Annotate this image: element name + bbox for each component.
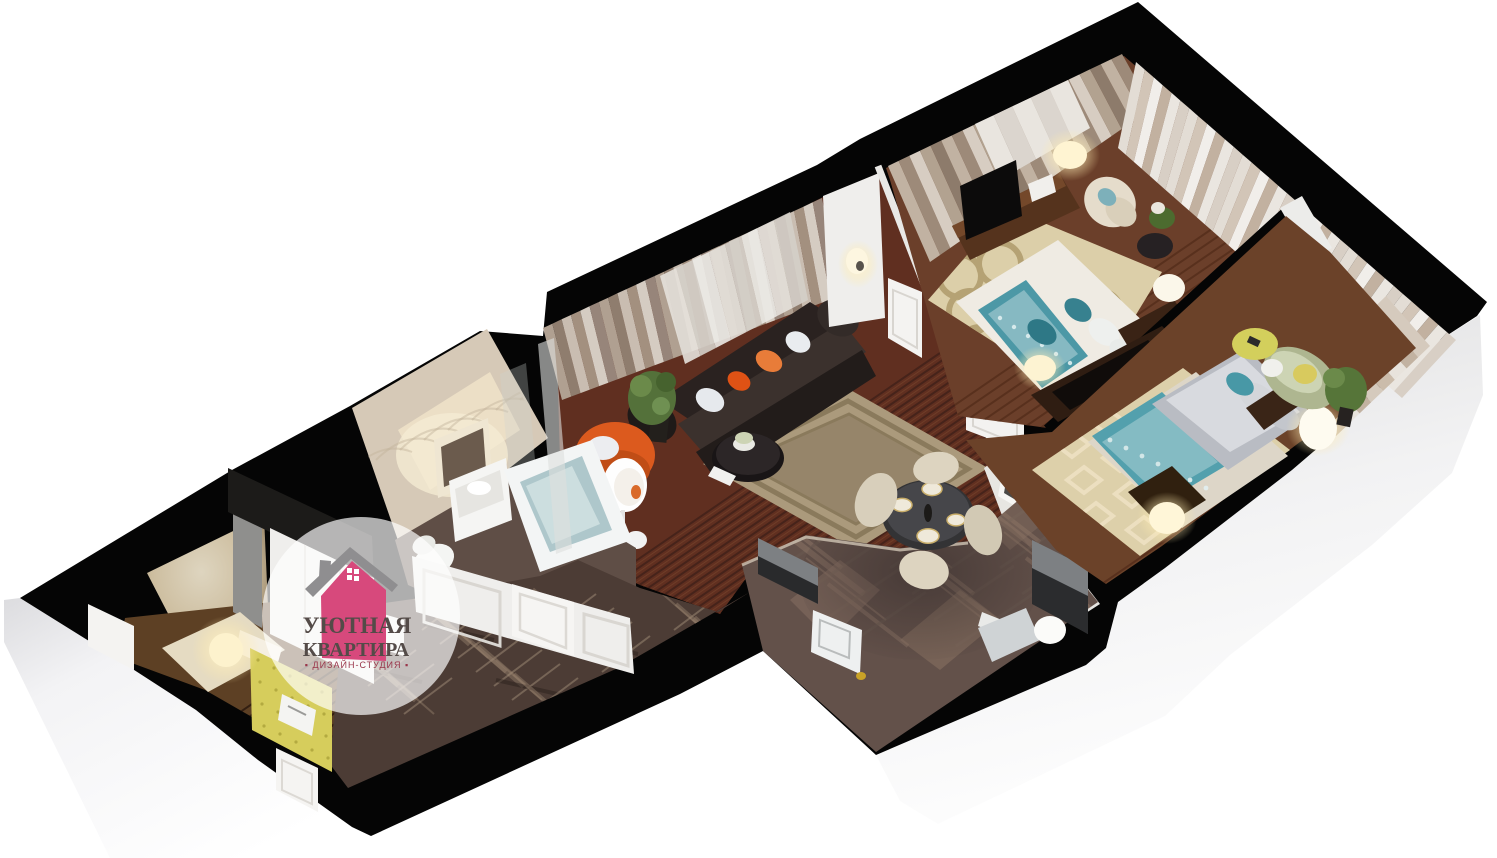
svg-text:КВАРТИРА: КВАРТИРА bbox=[303, 639, 410, 661]
svg-text:УЮТНАЯ: УЮТНАЯ bbox=[303, 613, 412, 638]
svg-text:▪ ДИЗАЙН-СТУДИЯ ▪: ▪ ДИЗАЙН-СТУДИЯ ▪ bbox=[305, 659, 409, 670]
